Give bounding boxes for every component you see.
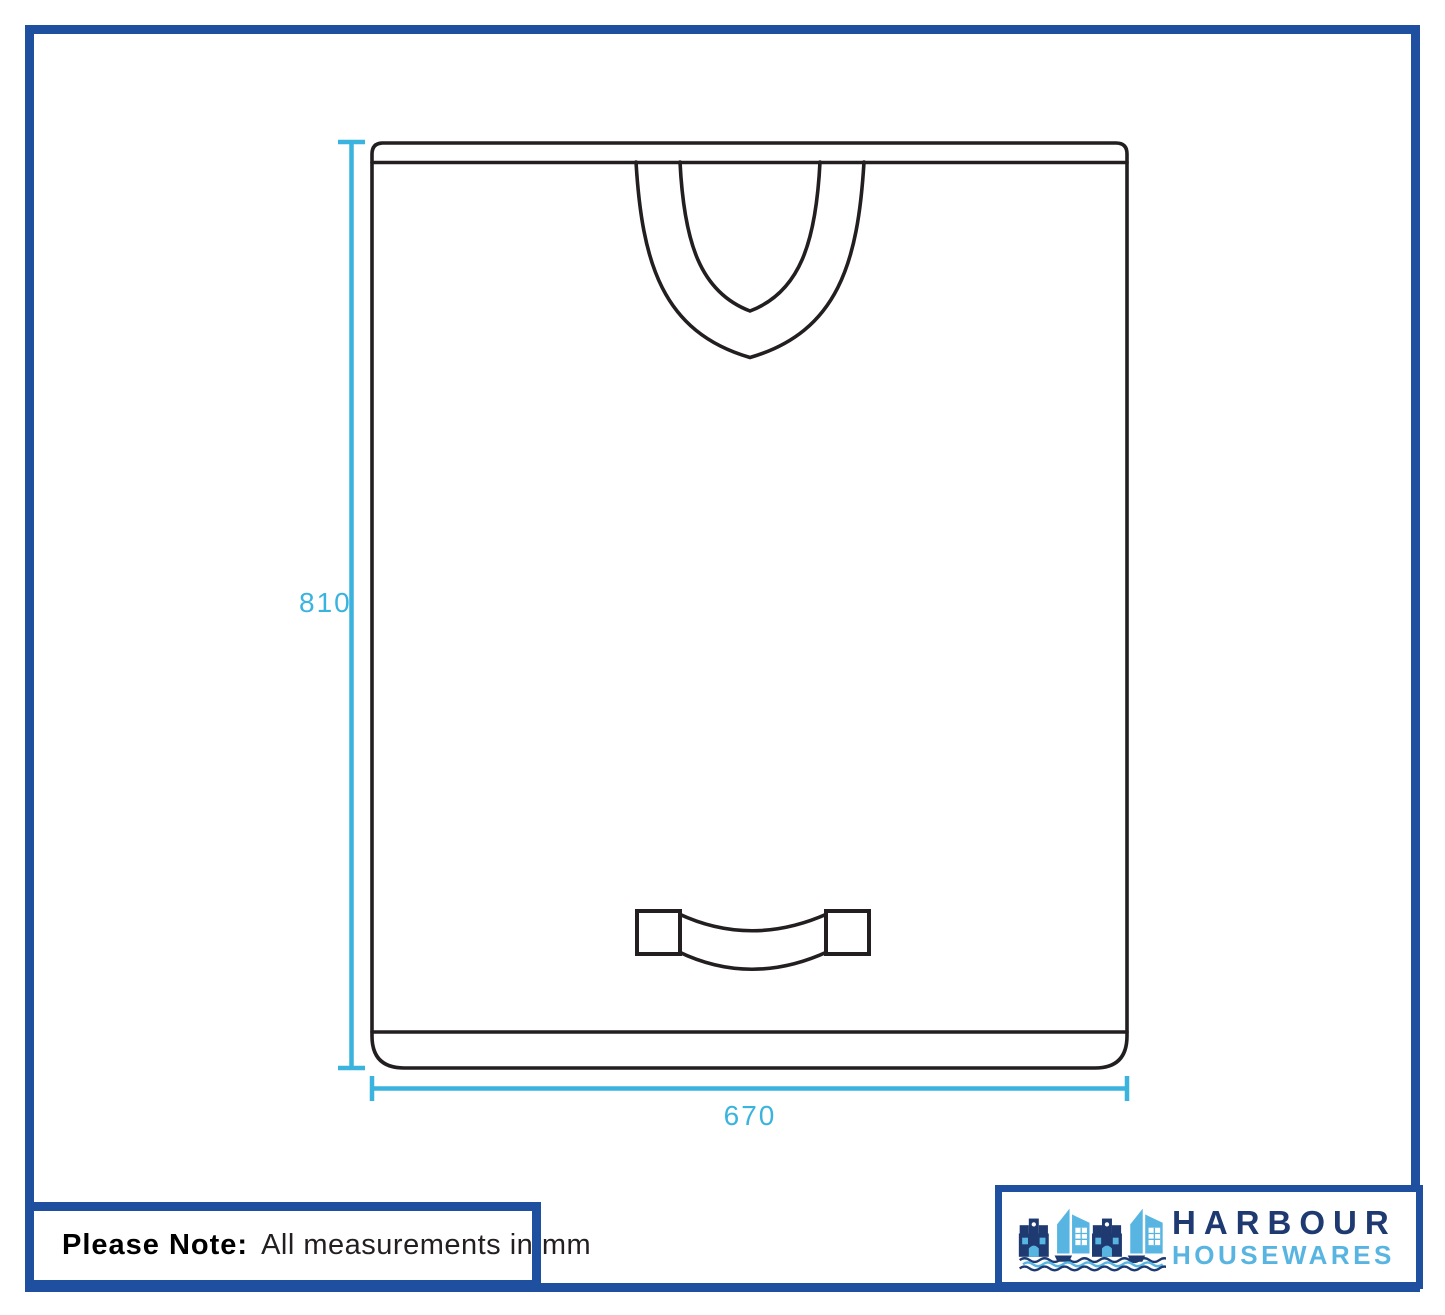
diagram-page: 810 670 Please Note: All measurements in… [0,0,1445,1315]
top-handle-inner-curve [680,162,820,311]
width-dimension-label: 670 [700,1102,800,1130]
top-handle-outer-curve [636,162,864,358]
height-dimension-label: 810 [299,589,352,617]
harbour-housewares-logo: HARBOUR HOUSEWARES [995,1185,1423,1289]
note-text: All measurements in mm [261,1229,591,1262]
sailboat-warehouse-icon [1128,1208,1163,1261]
note-label: Please Note: [62,1229,248,1262]
logo-brand-name: HARBOUR [1172,1206,1408,1241]
townhouse-icon [1019,1218,1049,1256]
sailboat-warehouse-icon [1055,1208,1090,1261]
bottom-handle-strap-top-edge [678,914,828,931]
note-box: Please Note: All measurements in mm [25,1202,541,1289]
townhouse-icon [1092,1218,1122,1256]
bottom-handle-right-bracket [826,911,869,954]
bottom-handle-left-bracket [637,911,680,954]
water-waves-icon [1020,1258,1166,1270]
harbour-buildings-boats-icon [1018,1205,1166,1272]
bottom-handle-strap-bottom-edge [678,952,828,970]
logo-wordmark: HARBOUR HOUSEWARES [1166,1206,1408,1268]
logo-brand-suffix: HOUSEWARES [1172,1242,1408,1268]
